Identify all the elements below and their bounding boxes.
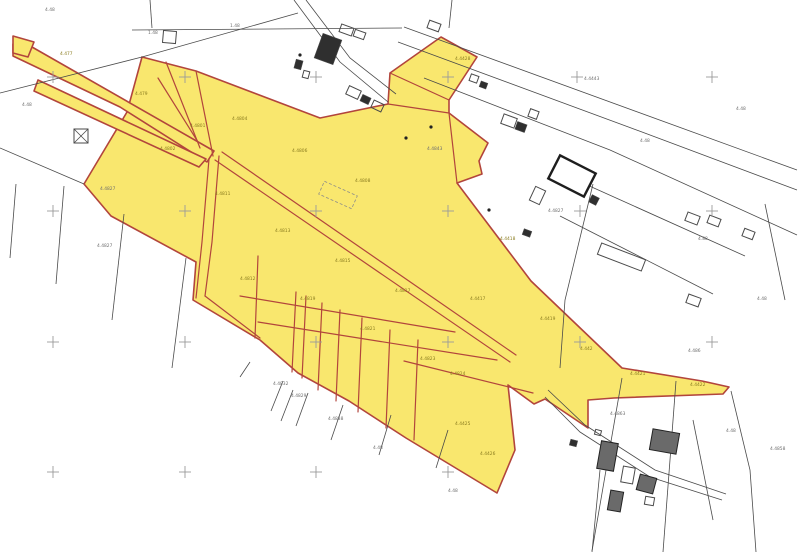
parcel-number-label: 4.4422 xyxy=(690,382,706,388)
parcel-number-label: 4.4863 xyxy=(610,411,626,417)
parcel-number-label: 4.4823 xyxy=(420,356,436,362)
parcel-number-label: 4.4804 xyxy=(232,116,248,122)
point-symbol xyxy=(298,53,301,56)
parcel-number-label: 4.4819 xyxy=(300,296,316,302)
parcel-number-label: 4.442 xyxy=(580,346,593,352)
parcel-number-label: 4.4417 xyxy=(470,296,486,302)
parcel-number-label: 4.48 xyxy=(726,428,736,434)
parcel-number-label: 4.4832 xyxy=(273,381,289,387)
parcel-number-label: 4.48 xyxy=(757,296,767,302)
parcel-number-label: 4.4813 xyxy=(275,228,291,234)
cadastral-map-canvas[interactable]: 4.481.481.484.44434.484.484.884.48274.48… xyxy=(0,0,800,552)
point-symbol xyxy=(487,208,490,211)
parcel-number-label: 4.4817 xyxy=(395,288,411,294)
parcel-number-label: 4.48 xyxy=(45,7,55,13)
parcel-number-label: 4.4812 xyxy=(240,276,256,282)
parcel-number-label: 4.486 xyxy=(688,348,701,354)
parcel-number-label: 4.4827 xyxy=(100,186,116,192)
cadastral-map-frame: 4.481.481.484.44434.484.484.884.48274.48… xyxy=(0,0,800,552)
building-hatched xyxy=(607,490,623,512)
parcel-number-label: 4.48 xyxy=(640,138,650,144)
building-hatched xyxy=(649,429,679,454)
parcel-number-label: 4.4808 xyxy=(355,178,371,184)
parcel-number-label: 4.479 xyxy=(135,91,148,97)
parcel-number-label: 4.4838 xyxy=(328,416,344,422)
parcel-number-label: 1.48 xyxy=(230,23,240,29)
parcel-number-label: 4.4425 xyxy=(455,421,471,427)
parcel-number-label: 4.4824 xyxy=(450,371,466,377)
parcel-number-label: 4.4428 xyxy=(455,56,471,62)
parcel-number-label: 4.4858 xyxy=(770,446,786,452)
parcel-number-label: 4.48 xyxy=(373,445,383,451)
parcel-number-label: 4.4421 xyxy=(630,371,646,377)
parcel-number-label: 4.88 xyxy=(698,236,708,242)
parcel-number-label: 4.4811 xyxy=(215,191,231,197)
parcel-number-label: 4.4443 xyxy=(584,76,600,82)
parcel-number-label: 4.477 xyxy=(60,51,73,57)
parcel-number-label: 4.4802 xyxy=(160,146,176,152)
parcel-number-label: 4.4821 xyxy=(360,326,376,332)
parcel-number-label: 4.48 xyxy=(736,106,746,112)
parcel-number-label: 4.4426 xyxy=(480,451,496,457)
parcel-number-label: 4.4829 xyxy=(291,393,307,399)
parcel-number-label: 4.4827 xyxy=(548,208,564,214)
parcel-number-label: 4.4815 xyxy=(335,258,351,264)
parcel-number-label: 4.4801 xyxy=(190,123,206,129)
parcel-number-label: 4.4806 xyxy=(292,148,308,154)
parcel-number-label: 1.48 xyxy=(148,30,158,36)
parcel-number-label: 4.4418 xyxy=(500,236,516,242)
parcel-number-label: 4.4843 xyxy=(427,146,443,152)
parcel-number-label: 4.4419 xyxy=(540,316,556,322)
parcel-number-label: 4.48 xyxy=(22,102,32,108)
parcel-number-label: 4.4827 xyxy=(97,243,113,249)
point-symbol xyxy=(404,136,407,139)
point-symbol xyxy=(429,125,432,128)
parcel-number-label: 4.48 xyxy=(448,488,458,494)
